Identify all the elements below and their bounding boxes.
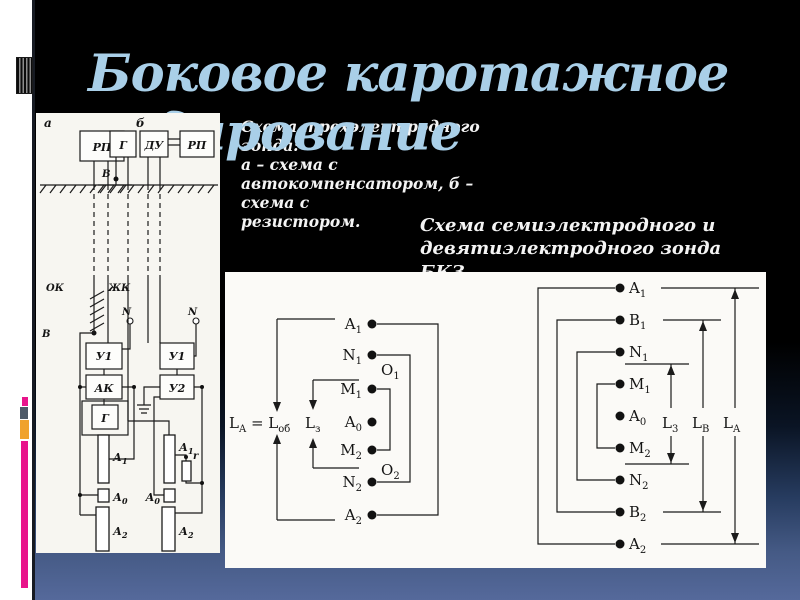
electrode-dot: [368, 351, 377, 360]
m-bracket: [597, 384, 615, 448]
borehole-hatch: [90, 291, 104, 331]
du-rp-link: [168, 139, 180, 145]
caption-bkz-line1: Схема семиэлектродного и: [420, 214, 740, 237]
u1-label-b: У1: [169, 350, 186, 363]
electrode-a2-label-b: А2: [178, 525, 194, 540]
ok-label: ОК: [46, 283, 65, 294]
barcode-stripe-icon: [16, 57, 33, 94]
arrow-up: [699, 321, 707, 331]
electrode-label: A0: [344, 413, 362, 434]
electrode-dot: [616, 476, 625, 485]
n-label-a: N: [121, 307, 132, 318]
accent-square-orange: [20, 420, 29, 439]
electrode-dot: [616, 380, 625, 389]
n-wire-a: [122, 324, 130, 349]
v-label-a: В: [41, 329, 50, 340]
junction-dot: [200, 481, 204, 485]
electrode-label: N2: [343, 473, 363, 494]
resistor-label-b: r: [193, 451, 199, 462]
accent-strip-magenta: [21, 441, 28, 588]
resistor-b: [182, 461, 191, 481]
electrode-dot: [368, 418, 377, 427]
junction-dot: [78, 493, 82, 497]
electrode-dot: [616, 508, 625, 517]
electrode-label: A1: [628, 279, 646, 300]
electrode-a1-label-b: А1: [178, 441, 194, 456]
lz-label: Lз: [305, 414, 320, 435]
electrode-a2-label-a: А2: [112, 525, 128, 540]
arrow-down: [699, 501, 707, 511]
electrode-dot: [616, 348, 625, 357]
la-dim-label: LA: [723, 414, 741, 435]
electrode-label: N1: [629, 343, 649, 364]
electrode-label: A2: [344, 506, 362, 527]
rp-surface-label-b: РП: [187, 139, 207, 152]
electrode-label: N2: [629, 471, 649, 492]
electrode-feed-wires-a: [80, 495, 98, 515]
scheme-b-label: б: [136, 116, 145, 130]
scheme-a-label: а: [44, 116, 52, 130]
lb-dim-label: LB: [692, 414, 709, 435]
junction-dot: [78, 385, 82, 389]
electrode-label: M2: [340, 441, 362, 462]
electrode-a1-bar-a: [98, 435, 109, 483]
arrow-down: [667, 453, 675, 463]
accent-square-slate: [20, 407, 28, 419]
electrode-dot: [616, 316, 625, 325]
electrode-dot: [368, 511, 377, 520]
v-label-b: В: [101, 169, 110, 180]
electrode-dot: [616, 444, 625, 453]
electrode-a2-bar-a: [96, 507, 109, 551]
n-bracket: [577, 352, 615, 480]
electrode-label: M1: [629, 375, 651, 396]
accent-square-pink: [22, 397, 28, 406]
electrode-label: M2: [629, 439, 651, 460]
caption-three-electrode-line3: автокомпенсатором, б – схема с: [241, 175, 491, 213]
electrode-label: A2: [628, 535, 646, 556]
electrode-label: B2: [629, 503, 646, 524]
electrode-a0-bar-b: [164, 489, 175, 502]
electrode-dot: [368, 320, 377, 329]
u1-label-a: У1: [96, 350, 113, 363]
electrode-a2-bar-b: [162, 507, 175, 551]
arrow-down: [273, 402, 281, 412]
electrode-dot: [616, 540, 625, 549]
electrode-a1-bar-b: [164, 435, 175, 483]
junction-dot: [184, 455, 188, 459]
electrode-label: M1: [340, 380, 362, 401]
three-electrode-figure-panel: а РП ОК ЖК В N У1 АК Г А1 А0 А2: [36, 113, 220, 553]
g-surface-label-b: Г: [118, 139, 128, 152]
slide-title-line1: Боковое каротажное: [88, 44, 728, 104]
electrode-a0-label-a: А0: [112, 491, 128, 506]
cable-dashed-b: [128, 185, 160, 277]
n-terminal-b: [193, 318, 199, 324]
l3-dim-label: L3: [662, 414, 678, 435]
n-label-b: N: [187, 307, 198, 318]
arrow-down: [731, 533, 739, 543]
a-bracket: [377, 324, 438, 515]
la-equals-lob-label: LA = Lоб: [229, 414, 290, 435]
electrode-a0-bar-a: [98, 489, 109, 502]
du-label-b: ДУ: [144, 139, 165, 152]
electrode-dot: [616, 412, 625, 421]
junction-dot: [200, 385, 204, 389]
arrow-up: [309, 438, 317, 448]
electrode-label: N1: [343, 346, 363, 367]
electrode-label: A1: [344, 315, 362, 336]
g-label-a: Г: [100, 412, 110, 425]
u2-label-b: У2: [169, 382, 186, 395]
b-bracket: [557, 320, 615, 512]
ak-label-a: АК: [94, 382, 115, 395]
v-node-b: [114, 177, 119, 182]
arrow-up: [731, 289, 739, 299]
electrode-label: B1: [629, 311, 646, 332]
electrode-dot: [368, 446, 377, 455]
rp-surface-label-a: РП: [92, 141, 112, 154]
m-bracket: [377, 389, 390, 450]
electrode-a1-label-a: А1: [112, 451, 128, 466]
scheme-a: а РП ОК ЖК В N У1 АК Г А1 А0 А2: [40, 116, 136, 551]
electrode-dot: [368, 478, 377, 487]
o2-point-label: O2: [381, 461, 400, 482]
three-electrode-figure: а РП ОК ЖК В N У1 АК Г А1 А0 А2: [36, 113, 220, 553]
arrow-up: [273, 434, 281, 444]
arrow-up: [667, 365, 675, 375]
electrode-label: A0: [628, 407, 646, 428]
electrode-dot: [616, 284, 625, 293]
bkz-figure-panel: A1 N1 M1 A0 M2 N2 A2 LA = Lоб Lз O1 O2: [225, 272, 766, 568]
scheme-b: б Г ДУ РП В N У1 У2 А1 r А0 А2: [98, 116, 218, 551]
o1-point-label: O1: [381, 361, 400, 382]
seven-electrode-diagram: A1 N1 M1 A0 M2 N2 A2 LA = Lоб Lз O1 O2: [229, 315, 438, 527]
ground-symbol-b: [137, 387, 160, 413]
junction-dot: [132, 385, 136, 389]
cable-dashed-a: [94, 185, 108, 277]
arrow-down: [309, 400, 317, 410]
electrode-dot: [368, 385, 377, 394]
bkz-figure: A1 N1 M1 A0 M2 N2 A2 LA = Lоб Lз O1 O2: [225, 272, 766, 568]
electrode-a0-label-b: А0: [144, 491, 160, 506]
nine-electrode-diagram: A1 B1 N1 M1 A0 M2 N2 B2 A2 L3 LB LA: [538, 279, 759, 556]
